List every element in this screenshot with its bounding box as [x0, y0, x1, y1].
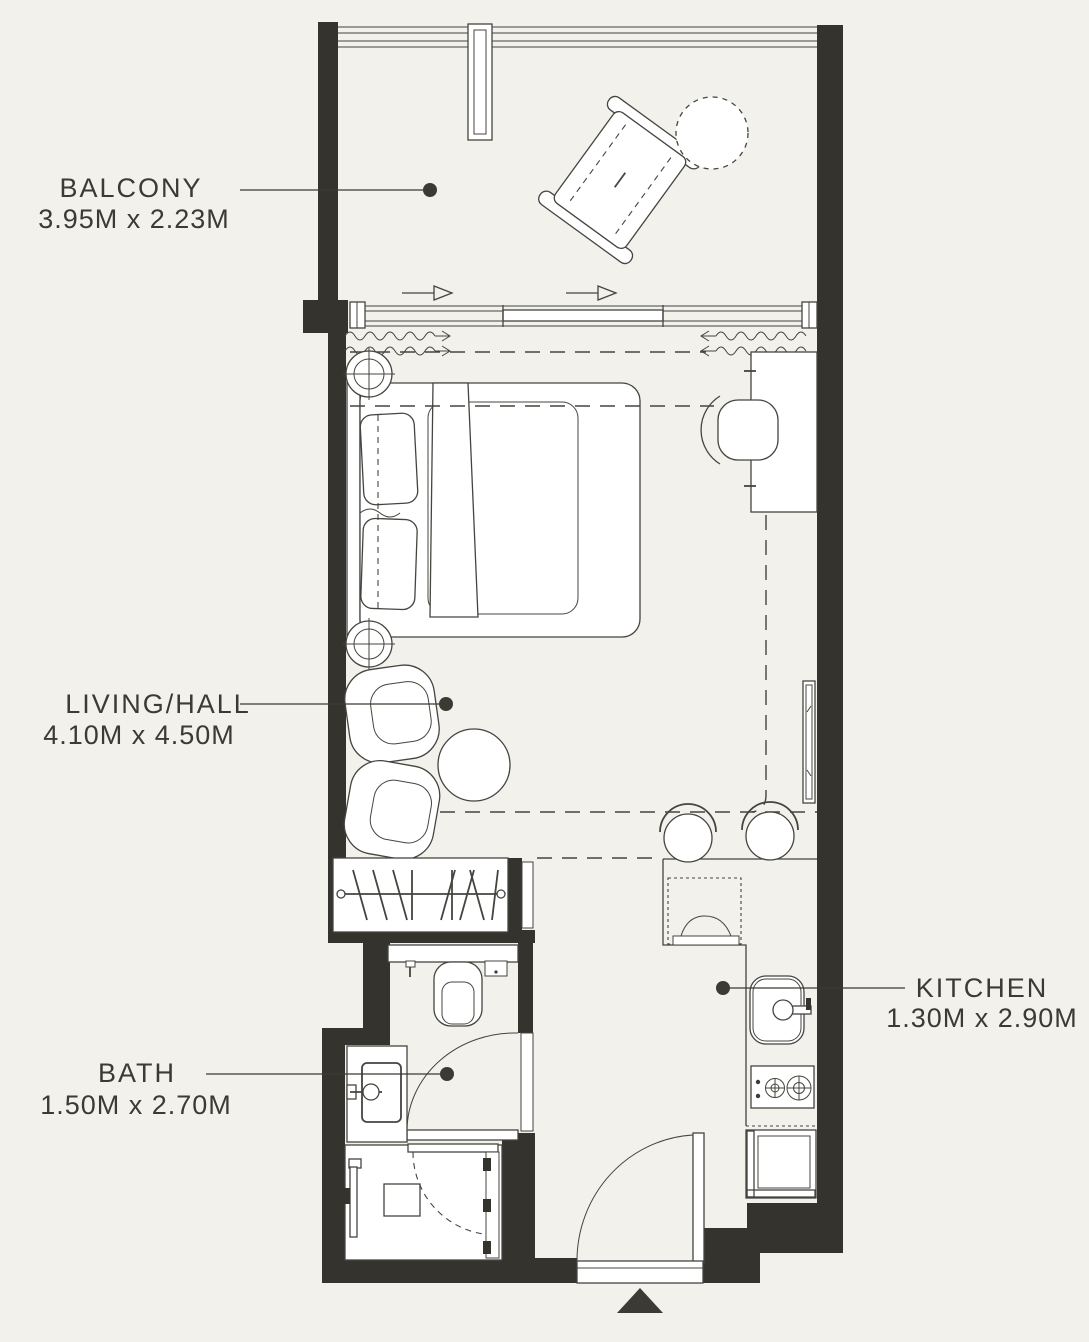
shower-knob	[344, 1188, 350, 1204]
wall-bath-right	[518, 943, 533, 1033]
door-jamb	[521, 1033, 533, 1131]
wall-balcony-left	[318, 22, 338, 302]
headboard	[347, 378, 360, 638]
room-dims: 1.30M x 2.90M	[886, 1003, 1078, 1033]
room-name: BATH	[98, 1058, 176, 1088]
wall-bath-left	[363, 943, 390, 1030]
wall-bottom-left	[322, 1258, 577, 1283]
shower-icon	[350, 1167, 357, 1237]
kitchen-sink-icon	[750, 976, 811, 1044]
floor-plan-drawing: BALCONY 3.95M x 2.23M LIVING/HALL 4.10M …	[0, 0, 1089, 1342]
washing-machine-icon	[668, 878, 741, 945]
balcony-partition-inner	[474, 30, 486, 134]
living-label: LIVING/HALL 4.10M x 4.50M	[43, 689, 251, 750]
room-dims: 3.95M x 2.23M	[38, 204, 230, 234]
wall-shower-right	[502, 1133, 535, 1260]
shower-zone	[344, 1144, 502, 1260]
wall-balcony-step	[303, 300, 348, 333]
door-jamb	[522, 862, 533, 928]
faucet-icon	[347, 1084, 382, 1100]
wall-wardrobe-right	[508, 858, 522, 932]
room-name: BALCONY	[59, 173, 202, 203]
wall-kitchen-bottom	[747, 1203, 843, 1253]
entry-threshold	[577, 1261, 703, 1283]
hob-icon	[751, 1066, 814, 1108]
double-bed-icon	[347, 378, 640, 638]
balcony-marker-dot	[423, 183, 437, 197]
armchair-icon	[341, 661, 443, 767]
balcony-label: BALCONY 3.95M x 2.23M	[38, 173, 230, 234]
tv-icon	[803, 681, 815, 803]
toilet-cistern	[388, 945, 518, 962]
room-name: KITCHEN	[916, 973, 1049, 1003]
kitchen-marker-dot	[716, 981, 730, 995]
bath-door-leaf	[407, 1130, 518, 1140]
desk-chair-icon	[718, 400, 778, 460]
entry-door-icon	[693, 1133, 704, 1263]
flush-plate	[485, 961, 507, 976]
wall-bath-jog	[322, 1028, 390, 1045]
shower-door-track	[408, 1144, 498, 1152]
window-overlap	[503, 310, 663, 321]
pillow	[360, 518, 417, 610]
coffee-table-icon	[438, 729, 510, 801]
wardrobe-icon	[333, 858, 533, 932]
fridge-icon	[746, 1130, 816, 1198]
wall-right	[817, 25, 843, 1203]
shower-room	[345, 1145, 502, 1260]
pillow	[360, 413, 419, 506]
room-name: LIVING/HALL	[65, 689, 251, 719]
wall-shower-left	[322, 1045, 345, 1265]
room-dims: 1.50M x 2.70M	[40, 1090, 232, 1120]
bath-marker-dot	[440, 1067, 454, 1081]
living-marker-dot	[439, 697, 453, 711]
floor-plan-page: BALCONY 3.95M x 2.23M LIVING/HALL 4.10M …	[0, 0, 1089, 1342]
room-dims: 4.10M x 4.50M	[43, 720, 235, 750]
toilet-bowl	[442, 982, 474, 1024]
wall-living-left	[328, 333, 346, 930]
round-table-icon	[676, 97, 748, 169]
